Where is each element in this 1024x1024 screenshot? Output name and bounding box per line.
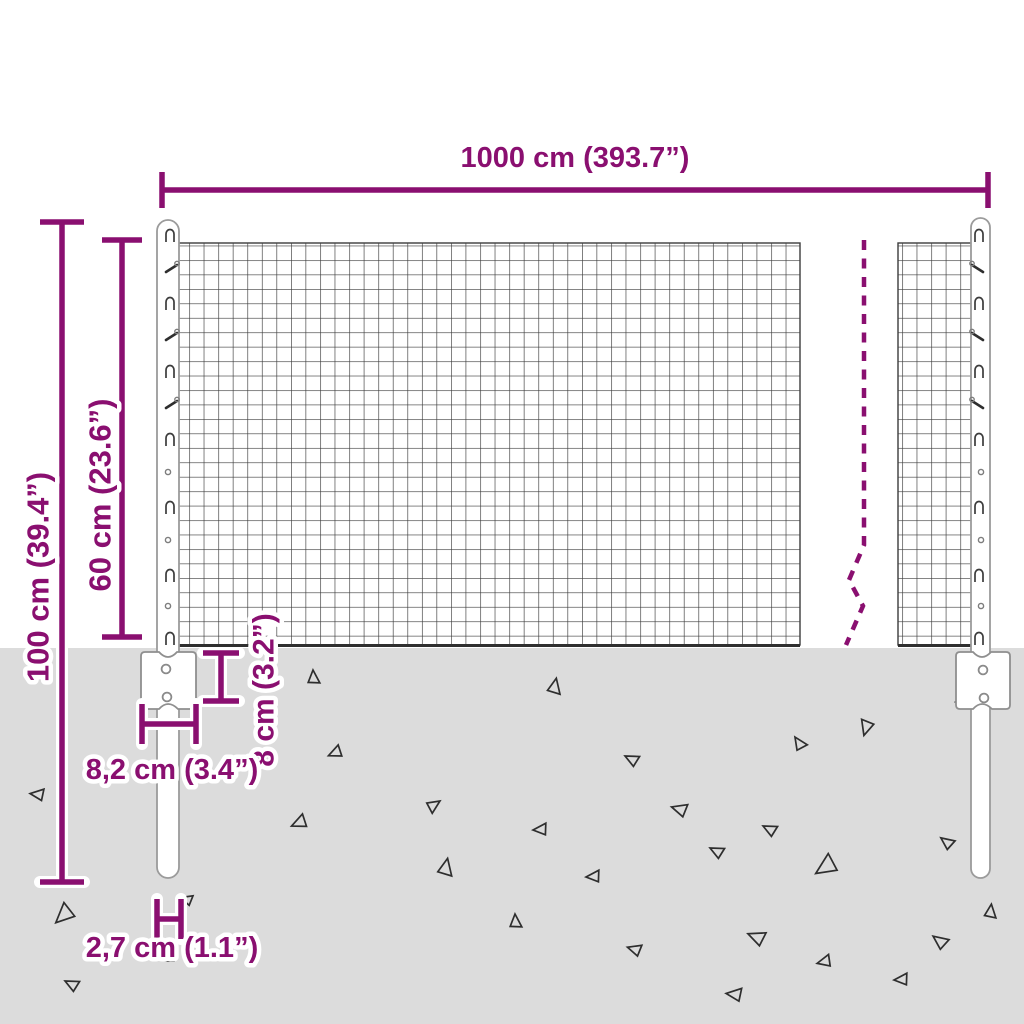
- mesh-height-label: 60 cm (23.6”): [83, 399, 118, 592]
- mesh-clip-icon: [975, 298, 983, 311]
- right-plate-hole-top: [979, 666, 988, 675]
- mesh-clip-icon: [975, 366, 983, 379]
- plate-height-label: 8 cm (3.2”): [248, 613, 281, 766]
- left-plate-hole-bottom: [163, 693, 172, 702]
- mesh-clip-icon: [166, 502, 174, 515]
- mesh-clip-icon: [166, 633, 174, 646]
- right-plate-hole-bottom: [980, 694, 989, 703]
- post-diameter-label: 2,7 cm (1.1”): [86, 932, 258, 964]
- mesh-clip-icon: [166, 434, 174, 447]
- mesh-clip-icon: [975, 570, 983, 583]
- plate-width-label: 8,2 cm (3.4”): [86, 754, 258, 786]
- left-plate-hole-top: [162, 665, 171, 674]
- fence-dimension-diagram: 1000 cm (393.7”) 100 cm (39.4”) 60 cm (2…: [0, 0, 1024, 1024]
- fence-mesh-left-panel: [168, 243, 800, 645]
- mesh-clip-icon: [166, 570, 174, 583]
- diagram-canvas: 1000 cm (393.7”) 100 cm (39.4”) 60 cm (2…: [0, 0, 1024, 1024]
- mesh-clip-icon: [166, 298, 174, 311]
- right-fence-post: [971, 218, 990, 878]
- mesh-clip-icon: [975, 434, 983, 447]
- mesh-clip-icon: [975, 230, 983, 243]
- total-width-label: 1000 cm (393.7”): [461, 142, 690, 174]
- mesh-clip-icon: [975, 502, 983, 515]
- mesh-clip-icon: [166, 230, 174, 243]
- panel-break-dashed-line: [846, 240, 864, 645]
- mesh-clip-icon: [166, 366, 174, 379]
- mesh-clip-icon: [975, 633, 983, 646]
- total-height-label: 100 cm (39.4”): [21, 472, 56, 682]
- total-width-dimension-line: [162, 172, 988, 208]
